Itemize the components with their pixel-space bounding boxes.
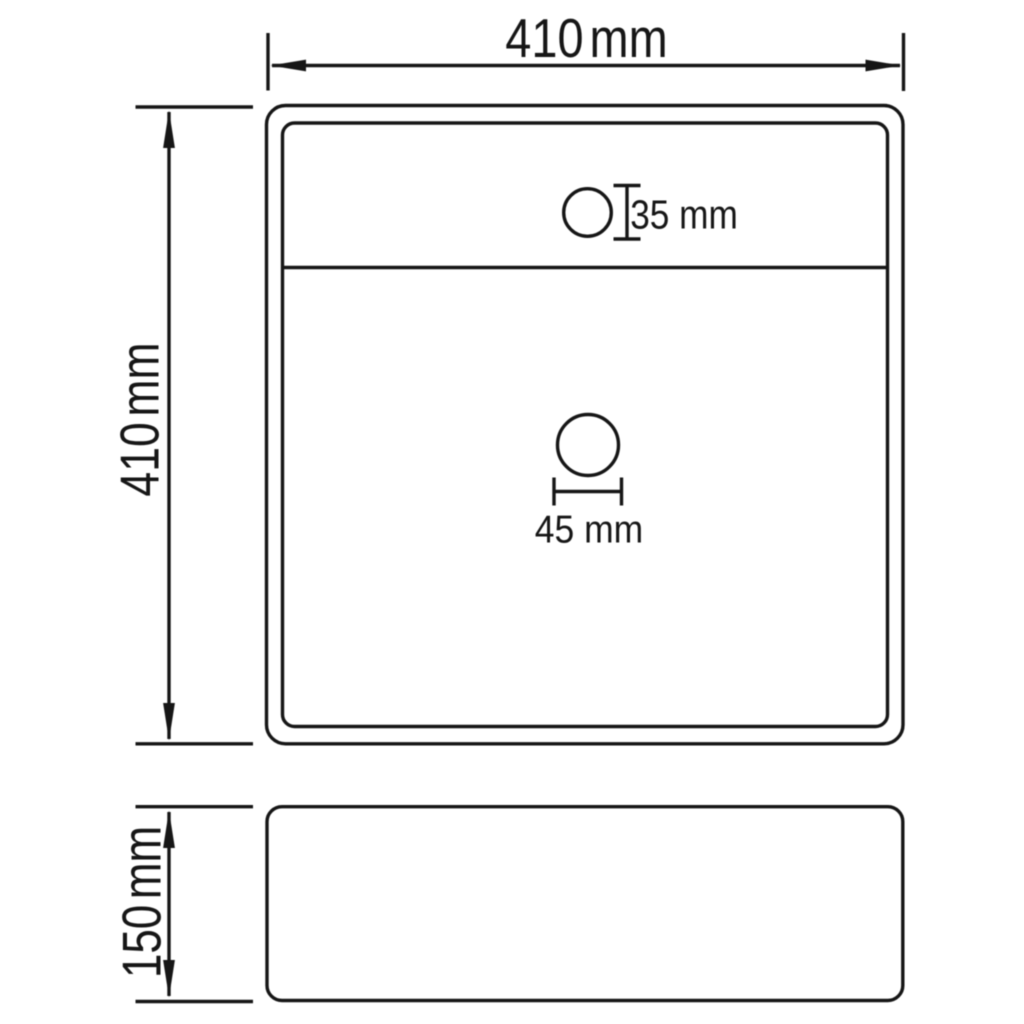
svg-text:45 mm: 45 mm xyxy=(535,507,643,551)
svg-text:35 mm: 35 mm xyxy=(630,193,738,238)
